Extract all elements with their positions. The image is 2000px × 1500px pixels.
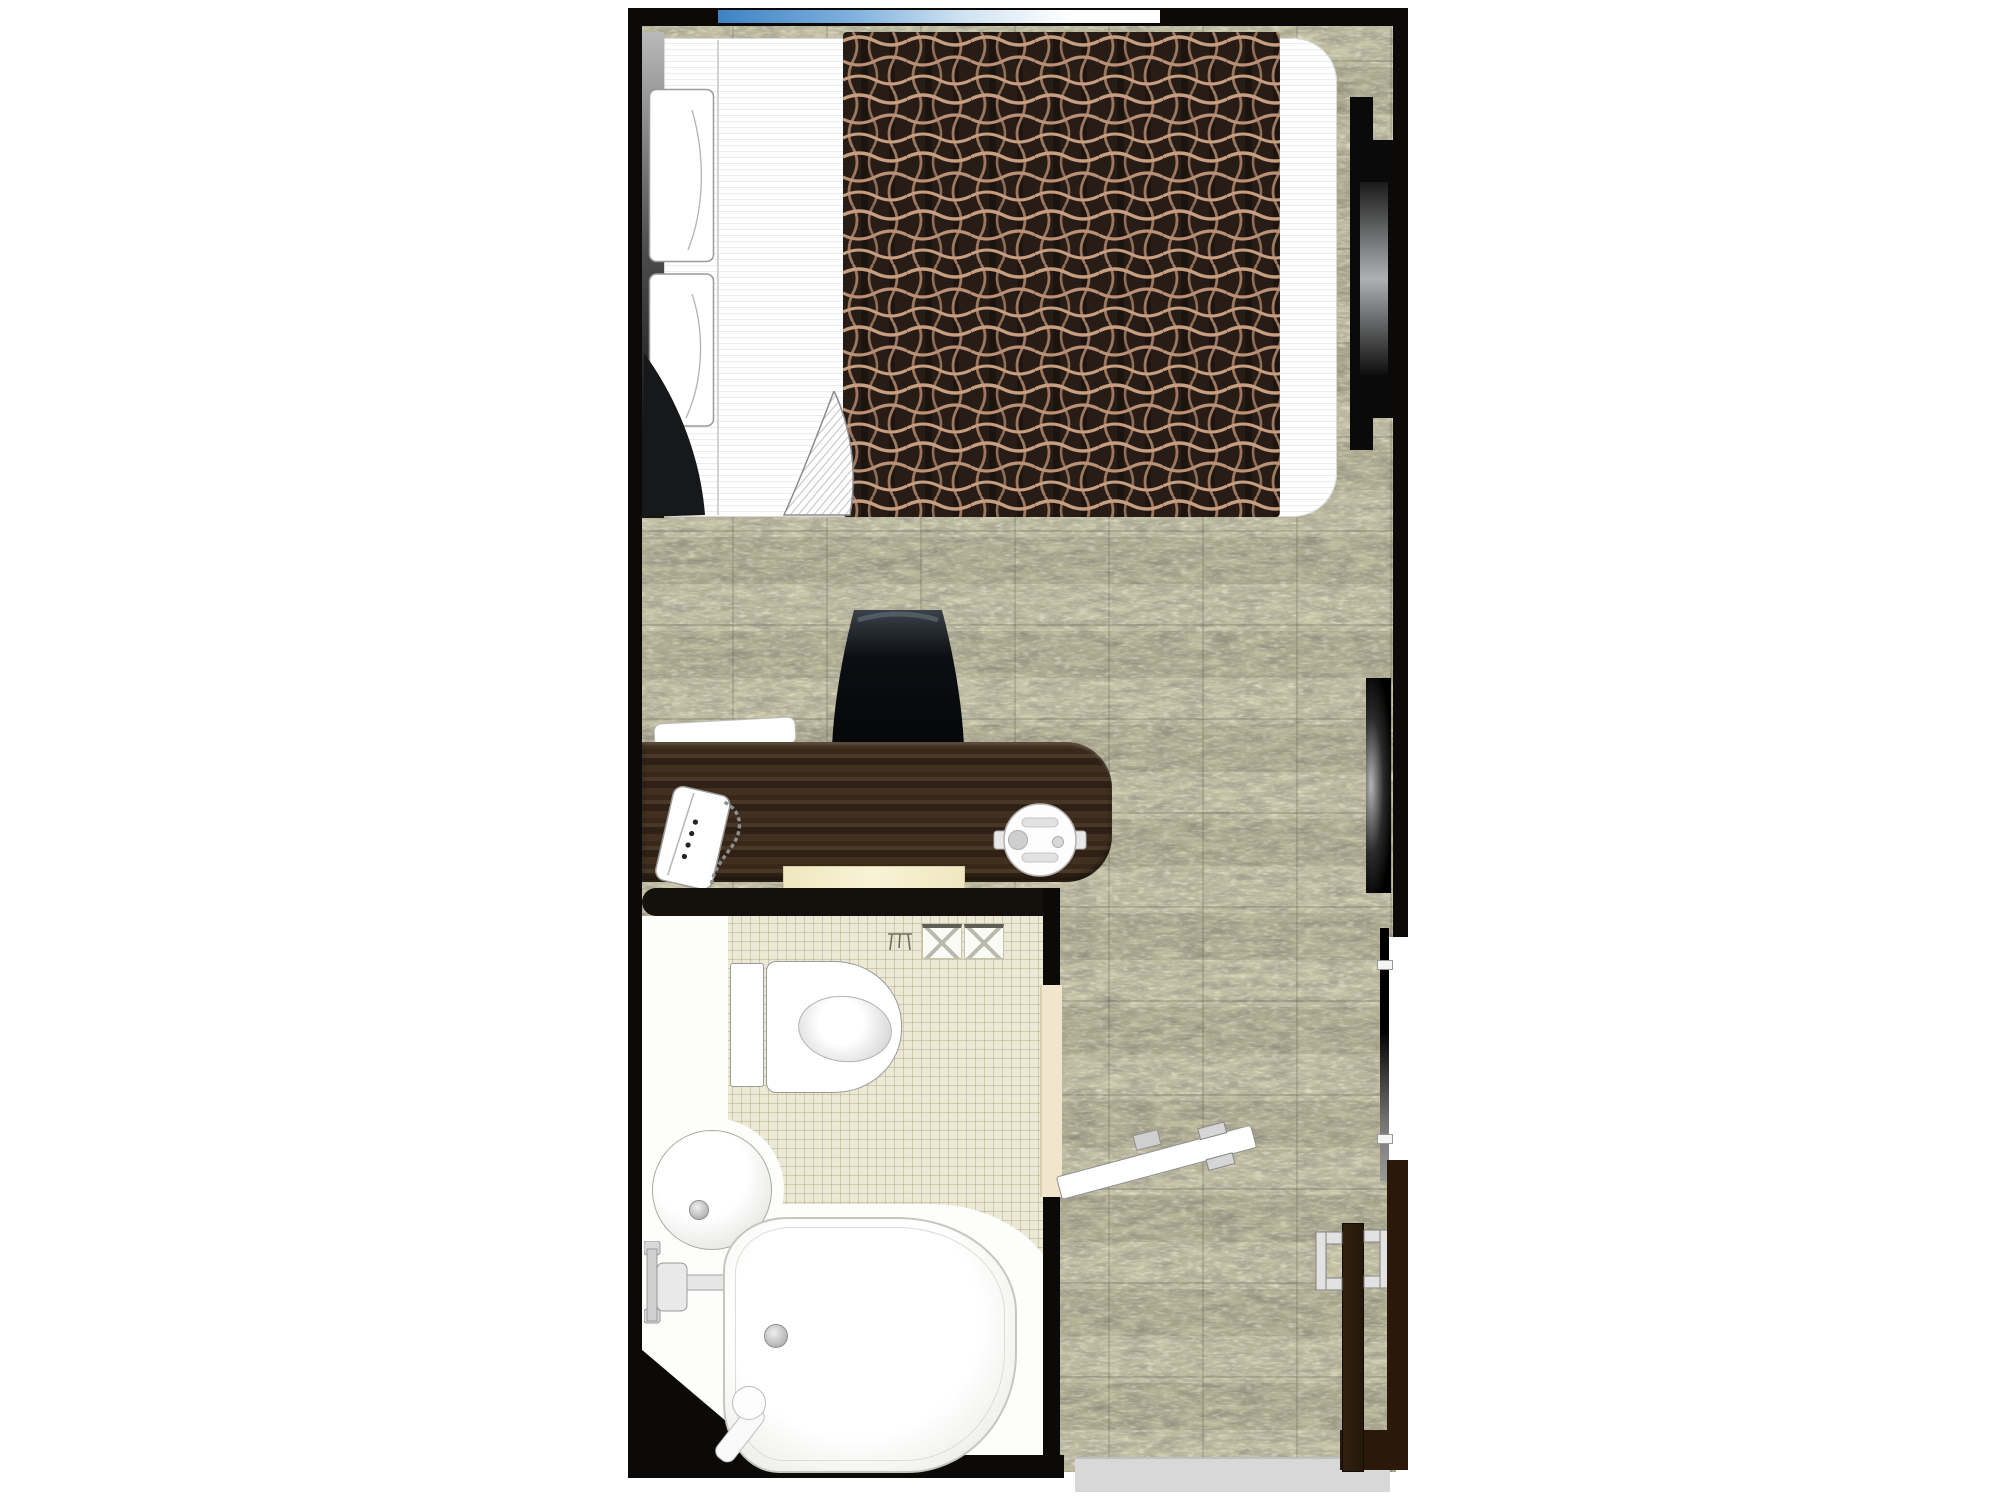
wall-right-entrance: [1387, 1160, 1408, 1470]
panel-handle: [1377, 960, 1393, 970]
towel-stand-icon: [886, 928, 916, 954]
electric-kettle: [992, 802, 1088, 878]
window: [718, 10, 1160, 23]
bathroom-wall-top: [642, 888, 1060, 916]
panel-handle: [1377, 1134, 1393, 1144]
tub-mixer-cap: [732, 1386, 766, 1420]
bathroom-doorway: [1040, 985, 1062, 1197]
wall-opening: [1389, 937, 1408, 1160]
entrance-door-handles: [1314, 1224, 1392, 1302]
console-glass-top: [1360, 182, 1388, 375]
floor-plan-page: [0, 0, 2000, 1500]
tub-drain: [764, 1324, 788, 1348]
folded-towel: [964, 924, 1004, 959]
sheet-fold-corner: [776, 391, 868, 517]
wall-right: [1393, 8, 1408, 937]
wall-left: [628, 8, 642, 1478]
toilet-tank: [730, 963, 764, 1087]
bed-runner: [843, 32, 1280, 517]
folded-towel: [922, 924, 962, 959]
lower-shelf: [783, 866, 965, 890]
bathroom-wall-right-lower: [1043, 1197, 1060, 1478]
floor-plan: [628, 8, 1408, 1492]
wall-mounted-tv: [1366, 678, 1391, 893]
basin-drain: [689, 1200, 709, 1220]
bed-corner-bolster: [642, 353, 706, 517]
desk-chair: [828, 608, 968, 748]
